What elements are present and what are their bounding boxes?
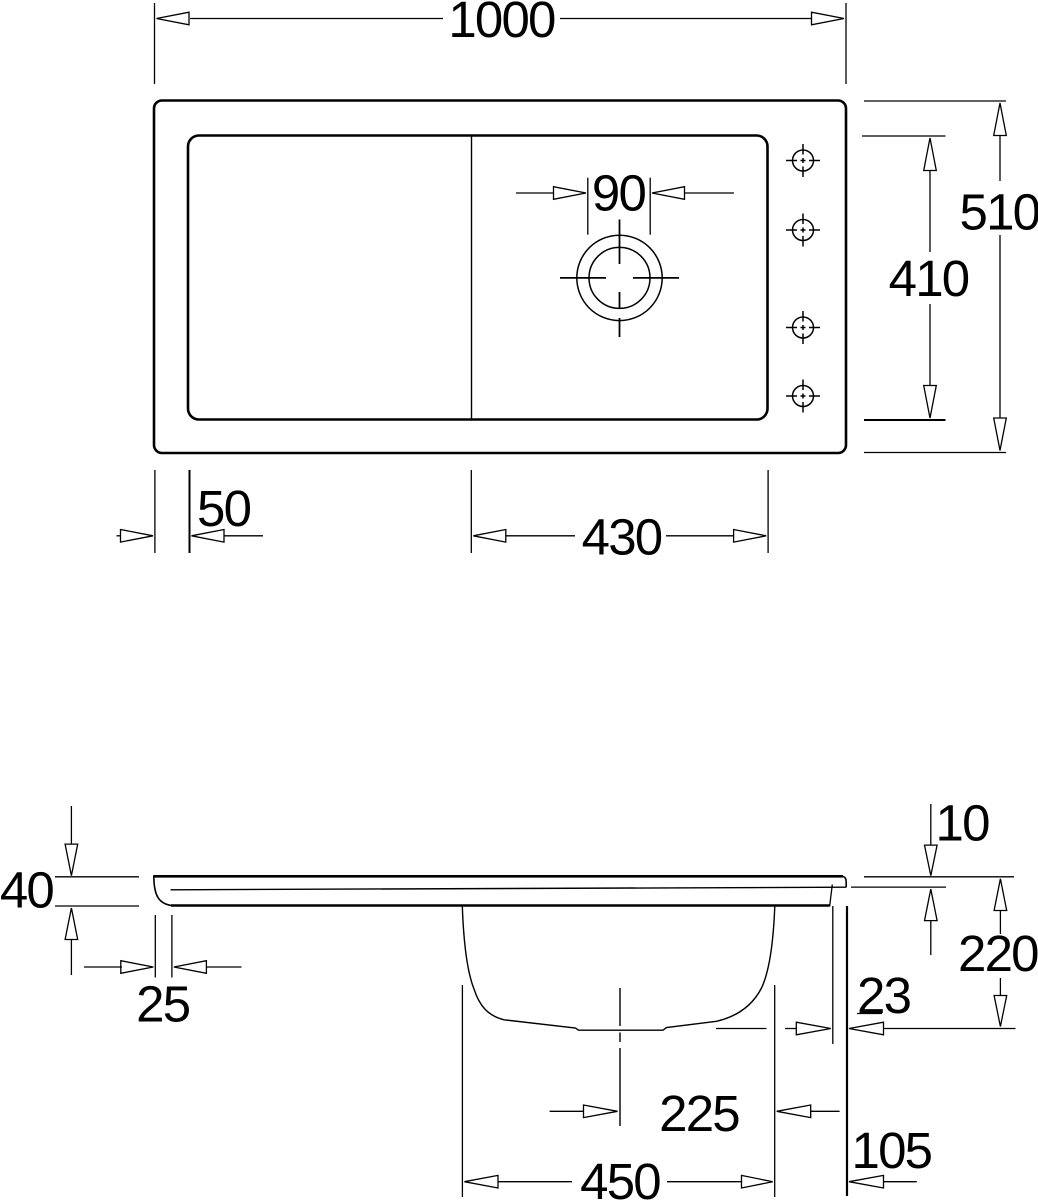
svg-text:410: 410 [889,250,969,307]
svg-text:450: 450 [580,1153,660,1200]
svg-text:25: 25 [136,976,190,1033]
svg-text:1000: 1000 [448,0,555,48]
svg-text:10: 10 [936,795,990,852]
svg-text:430: 430 [582,509,662,566]
svg-text:225: 225 [659,1085,739,1142]
svg-text:105: 105 [852,1122,932,1179]
svg-text:220: 220 [958,925,1038,982]
svg-text:50: 50 [197,480,251,537]
svg-text:40: 40 [0,862,53,919]
svg-text:90: 90 [592,165,646,222]
svg-text:510: 510 [960,184,1038,241]
svg-text:23: 23 [857,967,911,1024]
